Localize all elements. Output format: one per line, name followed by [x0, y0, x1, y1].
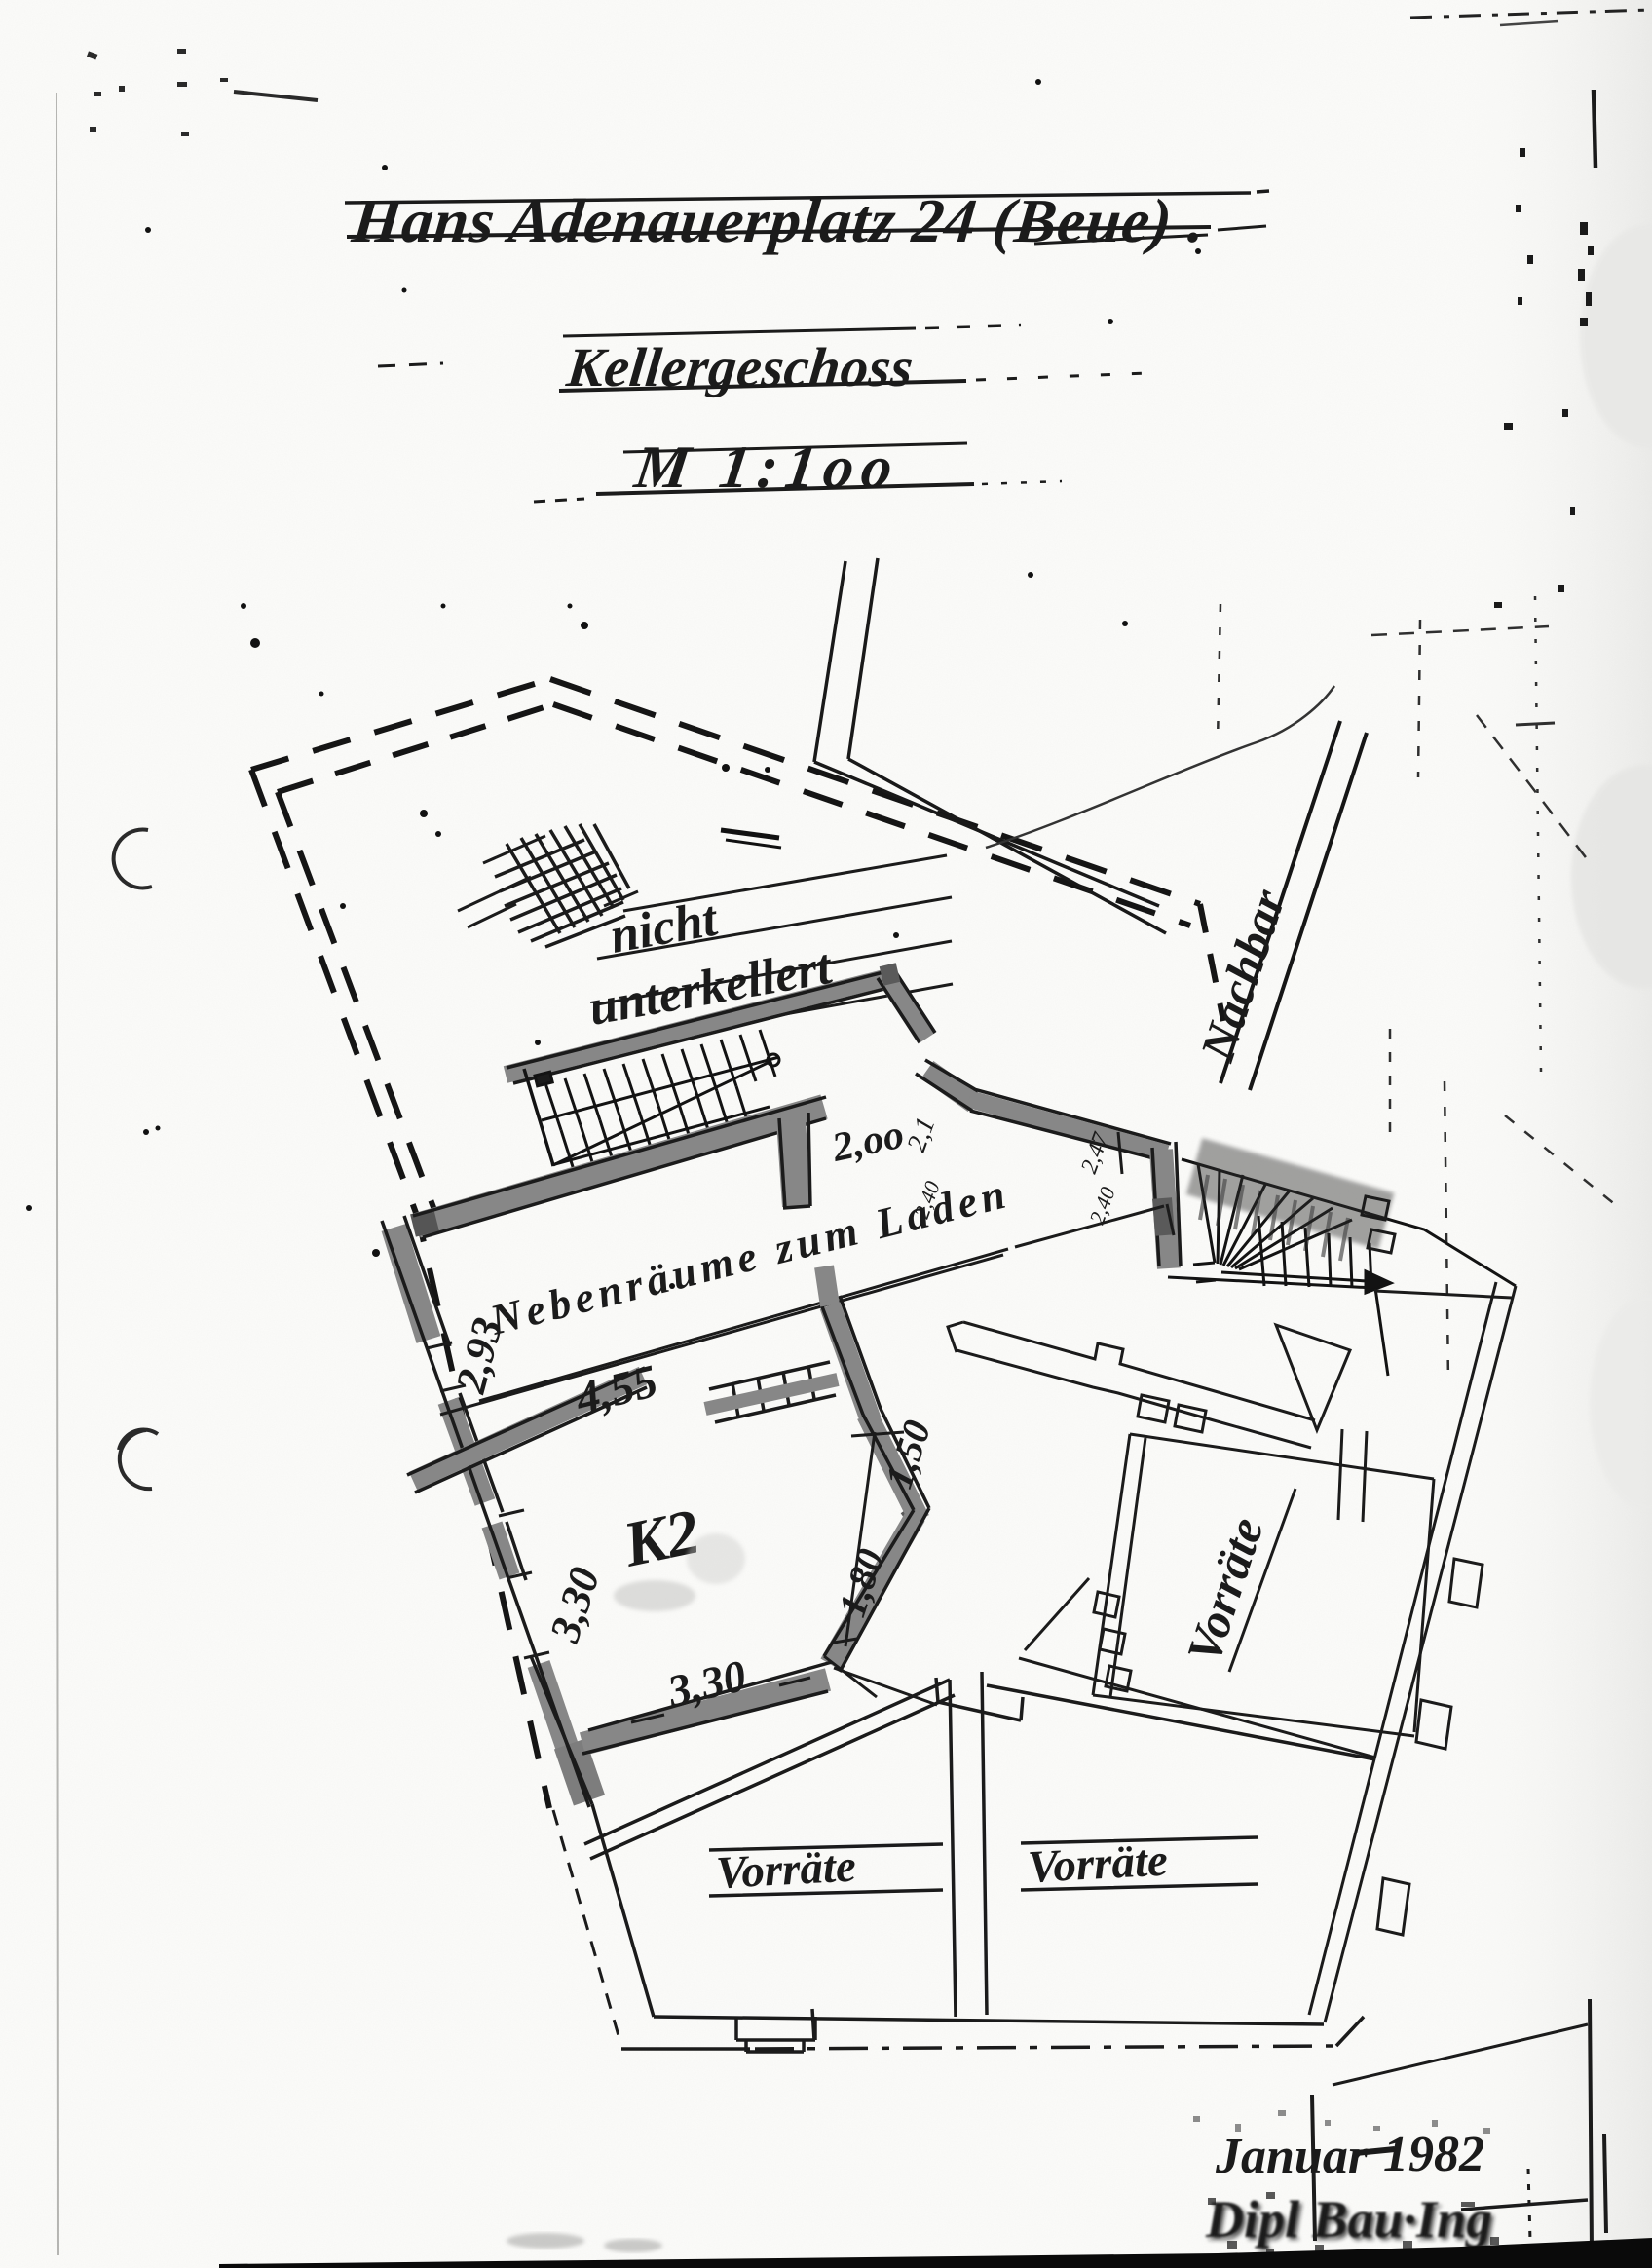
svg-text:Dipl Bau·Ing: Dipl Bau·Ing — [1208, 2193, 1495, 2251]
svg-text:Kellergeschoss: Kellergeschoss — [563, 337, 917, 398]
svg-text:1982: 1982 — [1383, 2127, 1484, 2182]
svg-text:Hans Adenauerplatz 24 (Beue) .: Hans Adenauerplatz 24 (Beue) . — [348, 186, 1209, 255]
svg-text:M 1:1oo: M 1:1oo — [630, 434, 905, 501]
svg-text:Januar: Januar — [1215, 2129, 1369, 2184]
